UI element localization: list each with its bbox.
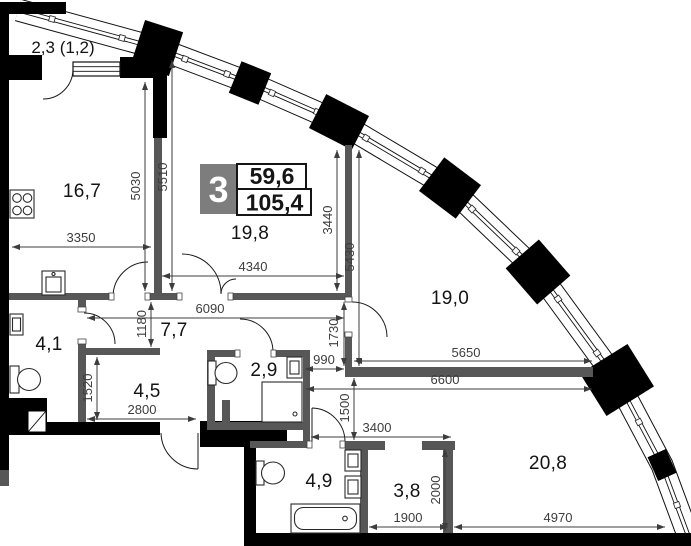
- entry-door-arc: [161, 433, 198, 469]
- bedroom-door-arc: [352, 302, 387, 337]
- bathroom-small-toilet-icon: [10, 366, 41, 393]
- dim-4970: 4970: [544, 510, 573, 525]
- dim-3400: 3400: [363, 420, 392, 435]
- dim-5030: 5030: [128, 172, 143, 201]
- room-label-storage: 3,8: [393, 481, 420, 502]
- room-label-balcony: 2,3 (1,2): [31, 38, 94, 57]
- shower-room-sink-icon: [287, 357, 302, 378]
- shower-room-door-arc: [240, 319, 273, 352]
- room-label-bathroom-small: 4,1: [35, 334, 62, 355]
- dim-5510: 5510: [155, 163, 170, 192]
- dim-1730: 1730: [326, 319, 341, 348]
- bathroom-toilet-icon: [256, 461, 285, 485]
- room-label-shower-room: 2,9: [250, 360, 277, 381]
- dim-1500: 1500: [337, 394, 352, 423]
- entry-niche: [28, 411, 46, 432]
- dim-2000: 2000: [428, 476, 443, 505]
- room-label-corridor: 7,7: [160, 320, 187, 341]
- dim-1900: 1900: [394, 510, 423, 525]
- kitchen-door-arc: [113, 262, 148, 297]
- stove-icon: [10, 190, 34, 218]
- dim-5650: 5650: [452, 345, 481, 360]
- floor-plan-svg: 3350 5030 5510 4340 3440 5430 6090 1180 …: [0, 0, 691, 546]
- room-label-bedroom: 19,0: [431, 288, 469, 309]
- shower-room-toilet-icon: [208, 361, 237, 385]
- floor-plan: 3350 5030 5510 4340 3440 5430 6090 1180 …: [0, 0, 691, 546]
- dim-3350: 3350: [67, 230, 96, 245]
- dim-6090: 6090: [196, 301, 225, 316]
- badge-room-count: 3: [208, 169, 228, 210]
- dim-4340: 4340: [239, 259, 268, 274]
- badge-total-area: 105,4: [246, 190, 304, 216]
- kitchen-sink-icon: [42, 271, 65, 295]
- room-label-bathroom: 4,9: [305, 471, 332, 492]
- room-label-hall: 4,5: [133, 381, 160, 402]
- dim-5430: 5430: [342, 243, 357, 272]
- balcony-door-arc: [43, 69, 73, 99]
- room-label-kitchen: 16,7: [63, 181, 101, 202]
- apartment-badge: 3 59,6 105,4: [200, 163, 311, 216]
- bathroom-sink2-icon: [345, 476, 361, 498]
- bathtub-icon: [291, 504, 360, 533]
- room-label-bedroom2: 20,8: [529, 453, 567, 474]
- dim-990: 990: [313, 352, 335, 367]
- bathroom-small-sink-icon: [10, 314, 23, 335]
- dim-1520: 1520: [80, 374, 95, 403]
- shower-cabin-icon: [262, 382, 302, 422]
- dim-6600: 6600: [431, 372, 460, 387]
- living-door-arc: [182, 254, 221, 293]
- dim-3440: 3440: [320, 206, 335, 235]
- dim-2800: 2800: [128, 402, 157, 417]
- bathroom-sink1-icon: [345, 450, 361, 471]
- balcony-window: [73, 62, 120, 76]
- badge-living-area: 59,6: [250, 163, 295, 189]
- dim-1180: 1180: [134, 310, 149, 338]
- room-label-living-room: 19,8: [231, 223, 269, 244]
- living-door-leaf2-arc: [221, 279, 236, 294]
